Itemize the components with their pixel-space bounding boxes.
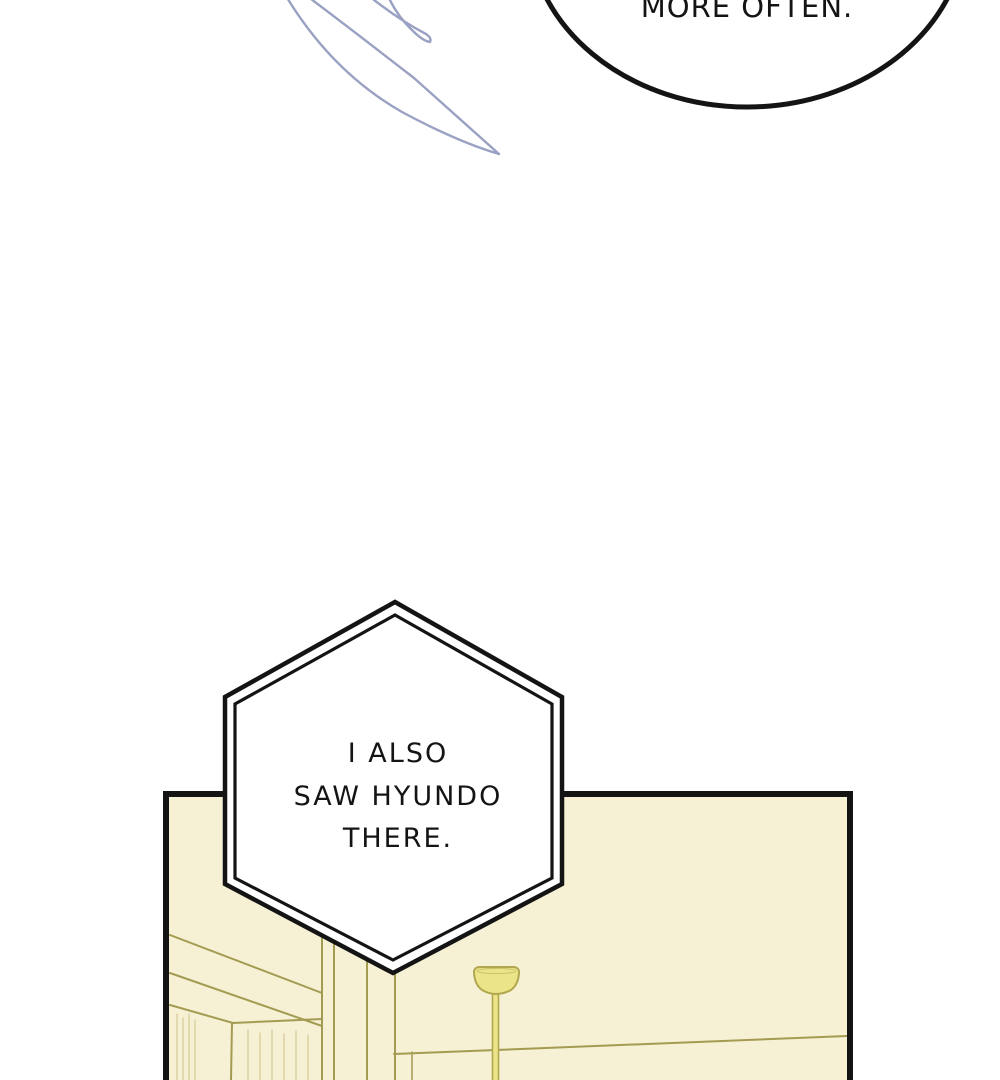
comic-artwork <box>0 0 1000 1080</box>
hair-strand-short-icon <box>369 0 431 42</box>
cabinet-corner-edge <box>231 1023 232 1080</box>
lamp-pole <box>493 990 499 1080</box>
hexagon-bubble-text-line-1: I ALSO <box>248 738 548 770</box>
lamp-shade-icon <box>474 967 519 994</box>
hexagon-bubble-text-line-2: SAW HYUNDO <box>248 781 548 813</box>
speech-bubble-text: MORE OFTEN. <box>528 0 966 24</box>
hexagon-bubble-text-line-3: THERE. <box>248 823 548 855</box>
comic-page: MORE OFTEN. I ALSO SAW HYUNDO THERE. <box>0 0 1000 1080</box>
hair-strand-long-icon <box>286 0 499 154</box>
hair-strands <box>286 0 499 154</box>
